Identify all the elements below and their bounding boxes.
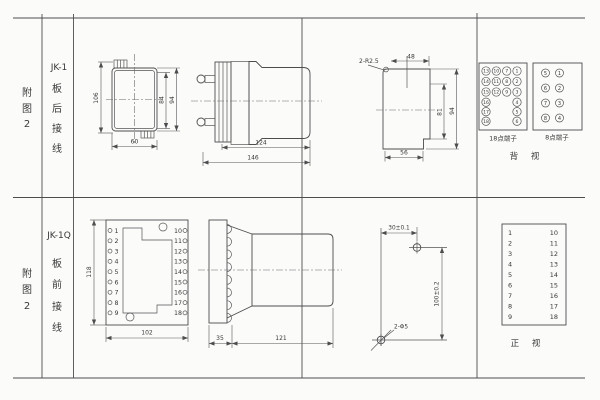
terminal-block-18pt: 13 10 7 1 14 11 8 2 15 12 9 3 16 4 17 5 … bbox=[479, 63, 527, 143]
table-number: 15 bbox=[550, 281, 558, 289]
wiring-char: 板 bbox=[52, 82, 62, 95]
terminal-number: 10 bbox=[493, 69, 499, 75]
dim-label-102: 102 bbox=[141, 330, 153, 337]
jk1q-side-view-drawing: 35 121 bbox=[198, 220, 342, 348]
table-number: 5 bbox=[508, 271, 512, 279]
front-terminal-number: 17 bbox=[174, 300, 182, 307]
wiring-char: 后 bbox=[52, 103, 62, 115]
wiring-char: 接 bbox=[52, 300, 62, 313]
fig-label-char: 图 bbox=[22, 284, 32, 296]
wiring-char: 线 bbox=[52, 142, 62, 155]
fig-label-char: 附 bbox=[22, 86, 32, 99]
jk1q-front-view-drawing: 1 2 3 4 5 6 7 8 9 10 11 12 13 14 15 16 1… bbox=[86, 220, 188, 342]
wiring-char: 前 bbox=[52, 278, 62, 291]
table-number: 7 bbox=[508, 292, 512, 300]
terminal-number: 7 bbox=[505, 69, 508, 75]
front-terminal-number: 5 bbox=[115, 269, 119, 276]
front-terminal-number: 1 bbox=[115, 228, 119, 235]
wiring-char: 线 bbox=[52, 321, 62, 334]
table-number: 8 bbox=[508, 302, 512, 310]
dim-label-94: 94 bbox=[169, 96, 176, 104]
front-terminal-number: 2 bbox=[115, 238, 119, 245]
front-terminal-number: 11 bbox=[174, 238, 182, 245]
terminal-block-8pt: 5 1 6 2 7 3 8 4 8点端子 bbox=[533, 63, 582, 142]
terminal-number: 14 bbox=[483, 79, 489, 85]
dim-label-94-cutout: 94 bbox=[449, 107, 456, 115]
table-number: 14 bbox=[550, 271, 558, 279]
dim-label-106: 106 bbox=[93, 92, 100, 104]
dim-label-100: 100±0.2 bbox=[435, 281, 441, 306]
table-number: 2 bbox=[508, 239, 512, 247]
wiring-char: 接 bbox=[52, 122, 62, 135]
front-terminal-number: 10 bbox=[174, 228, 182, 235]
dim-label-30: 30±0.1 bbox=[388, 226, 410, 232]
rear-view-label: 背 视 bbox=[510, 151, 545, 162]
dim-label-146: 146 bbox=[247, 155, 259, 162]
front-terminal-number: 18 bbox=[174, 310, 182, 317]
corner-radius-note: 2-R2.5 bbox=[359, 58, 379, 65]
terminal-number: 8 bbox=[505, 79, 508, 85]
table-number: 10 bbox=[550, 229, 558, 237]
table-number: 3 bbox=[508, 250, 512, 258]
terminal8-caption: 8点端子 bbox=[545, 133, 569, 142]
front-view-label: 正 视 bbox=[511, 338, 546, 349]
table-number: 12 bbox=[550, 250, 558, 258]
dim-label-48: 48 bbox=[407, 54, 415, 61]
table-number: 18 bbox=[550, 313, 558, 321]
terminal-number: 2 bbox=[558, 86, 561, 92]
dim-label-81: 81 bbox=[437, 108, 444, 116]
row1-figure-label: 附 图 2 bbox=[22, 86, 32, 130]
terminal-table-front: 110 211 312 413 514 615 716 817 918 bbox=[502, 224, 566, 325]
front-terminal-number: 8 bbox=[115, 300, 119, 307]
terminal-number: 3 bbox=[516, 90, 519, 96]
fig-label-char: 附 bbox=[22, 267, 32, 280]
terminal-number: 11 bbox=[493, 79, 499, 85]
terminal-number: 6 bbox=[544, 86, 547, 92]
terminal-number: 6 bbox=[516, 119, 519, 125]
front-terminal-number: 3 bbox=[115, 248, 119, 255]
jk1-rear-view-drawing: 106 84 94 60 bbox=[93, 54, 180, 150]
wiring-char: 板 bbox=[52, 257, 62, 270]
terminal-number: 5 bbox=[516, 109, 519, 115]
drawing-sheet: 附 图 2 JK-1 板 后 接 线 106 84 bbox=[0, 0, 600, 400]
terminal-number: 16 bbox=[483, 100, 489, 106]
front-terminal-number: 14 bbox=[174, 269, 182, 276]
dim-label-124: 124 bbox=[255, 140, 267, 147]
dim-label-60: 60 bbox=[131, 139, 139, 146]
row2-figure-label: 附 图 2 bbox=[22, 267, 32, 312]
front-terminal-number: 16 bbox=[174, 290, 182, 297]
technical-drawing-canvas: 附 图 2 JK-1 板 后 接 线 106 84 bbox=[0, 0, 600, 400]
row2-model-label: JK-1Q 板 前 接 线 bbox=[46, 231, 71, 334]
table-number: 16 bbox=[550, 292, 558, 300]
table-number: 4 bbox=[508, 260, 512, 268]
front-terminal-number: 9 bbox=[115, 310, 119, 317]
terminal-number: 12 bbox=[493, 90, 499, 96]
terminal-number: 13 bbox=[483, 69, 489, 75]
jk1q-drilling-plan-drawing: 30±0.1 100±0.2 2-Φ5 bbox=[371, 226, 447, 351]
table-number: 11 bbox=[550, 239, 558, 247]
front-terminal-number: 13 bbox=[174, 259, 182, 266]
terminal-number: 15 bbox=[483, 90, 489, 96]
row1-model-label: JK-1 板 后 接 线 bbox=[50, 63, 68, 155]
terminal18-caption: 18点端子 bbox=[489, 134, 517, 143]
table-number: 9 bbox=[508, 313, 512, 321]
table-number: 17 bbox=[550, 302, 558, 310]
dim-label-121: 121 bbox=[275, 335, 287, 342]
model-name: JK-1 bbox=[50, 63, 68, 73]
dim-label-56: 56 bbox=[400, 150, 408, 157]
model-name: JK-1Q bbox=[46, 231, 71, 241]
table-number: 1 bbox=[508, 229, 512, 237]
dim-label-118: 118 bbox=[86, 266, 93, 278]
terminal-number: 4 bbox=[516, 100, 519, 106]
terminal-number: 8 bbox=[544, 116, 547, 122]
terminal-number: 7 bbox=[544, 101, 547, 107]
front-terminal-number: 12 bbox=[174, 248, 182, 255]
terminal-number: 5 bbox=[544, 71, 547, 77]
terminal-number: 2 bbox=[516, 79, 519, 85]
table-number: 13 bbox=[550, 260, 558, 268]
front-terminal-number: 7 bbox=[115, 290, 119, 297]
terminal-number: 3 bbox=[558, 101, 561, 107]
fig-label-char: 2 bbox=[24, 119, 30, 130]
front-terminal-number: 6 bbox=[115, 279, 119, 286]
front-terminal-number: 4 bbox=[115, 259, 119, 266]
front-terminal-number: 15 bbox=[174, 279, 182, 286]
jk1-panel-cutout-drawing: 2-R2.5 48 81 94 56 bbox=[359, 54, 459, 162]
terminal-number: 4 bbox=[558, 116, 561, 122]
terminal-number: 18 bbox=[483, 119, 489, 125]
fig-label-char: 2 bbox=[24, 301, 30, 312]
table-number: 6 bbox=[508, 281, 512, 289]
terminal-number: 1 bbox=[558, 71, 561, 77]
terminal-number: 1 bbox=[516, 69, 519, 75]
fig-label-char: 图 bbox=[22, 103, 32, 115]
dim-label-35: 35 bbox=[216, 335, 224, 342]
hole-spec-note: 2-Φ5 bbox=[394, 325, 408, 331]
dim-label-84: 84 bbox=[159, 96, 166, 104]
terminal-number: 9 bbox=[505, 90, 508, 96]
terminal-number: 17 bbox=[483, 109, 489, 115]
